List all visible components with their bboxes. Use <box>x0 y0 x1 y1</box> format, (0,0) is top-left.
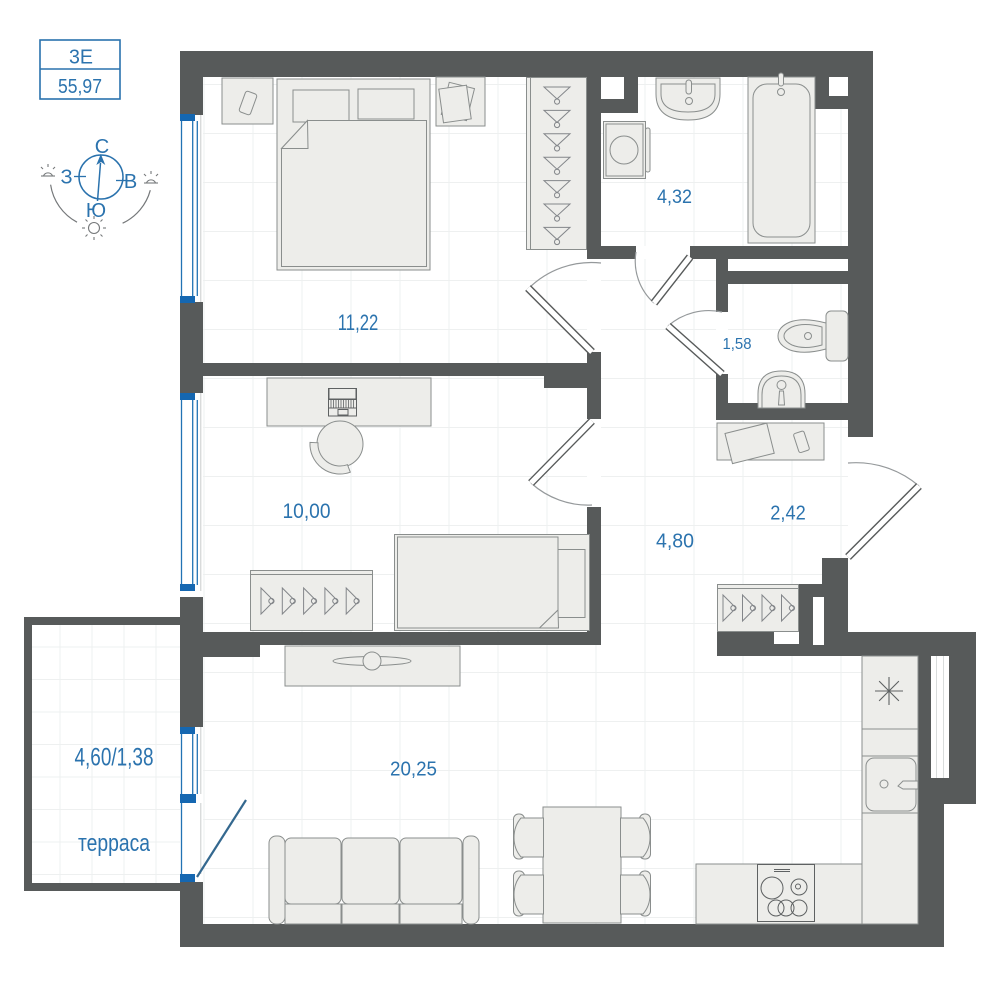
svg-text:55,97: 55,97 <box>58 76 102 98</box>
svg-text:терраса: терраса <box>78 830 151 857</box>
svg-text:11,22: 11,22 <box>338 310 379 335</box>
svg-text:З: З <box>60 167 72 189</box>
svg-text:20,25: 20,25 <box>390 759 437 781</box>
svg-text:4,80: 4,80 <box>656 531 694 553</box>
svg-text:Ю: Ю <box>86 200 106 222</box>
svg-text:1,58: 1,58 <box>723 336 752 353</box>
svg-text:10,00: 10,00 <box>283 500 331 523</box>
svg-text:2,42: 2,42 <box>770 503 806 525</box>
svg-text:3Е: 3Е <box>69 47 93 69</box>
svg-text:4,32: 4,32 <box>657 187 692 208</box>
svg-text:С: С <box>95 136 109 158</box>
svg-text:4,60/1,38: 4,60/1,38 <box>75 744 154 772</box>
svg-text:В: В <box>124 171 137 193</box>
